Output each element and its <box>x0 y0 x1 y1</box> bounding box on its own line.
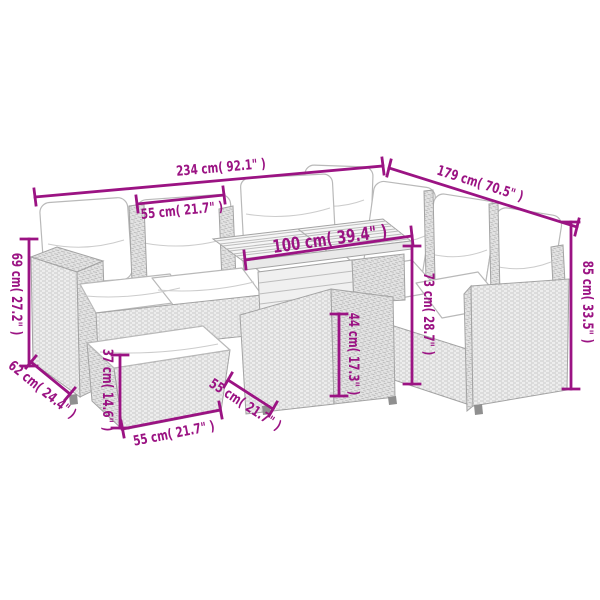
dimension-diagram: 234 cm( 92.1" ) 179 cm( 70.5" ) 55 cm( 2… <box>0 0 600 600</box>
dim-label-back-height: 73 cm( 28.7" ) <box>421 273 435 356</box>
dim-label-total-height: 85 cm( 33.5" ) <box>580 261 594 344</box>
dim-label-table-height: 44 cm( 17.3" ) <box>346 313 360 396</box>
dim-label-ottoman-height: 37 cm( 14.6" ) <box>100 349 114 432</box>
dim-label-armrest-height: 69 cm( 27.2" ) <box>9 253 23 336</box>
furniture-illustration <box>0 0 600 600</box>
